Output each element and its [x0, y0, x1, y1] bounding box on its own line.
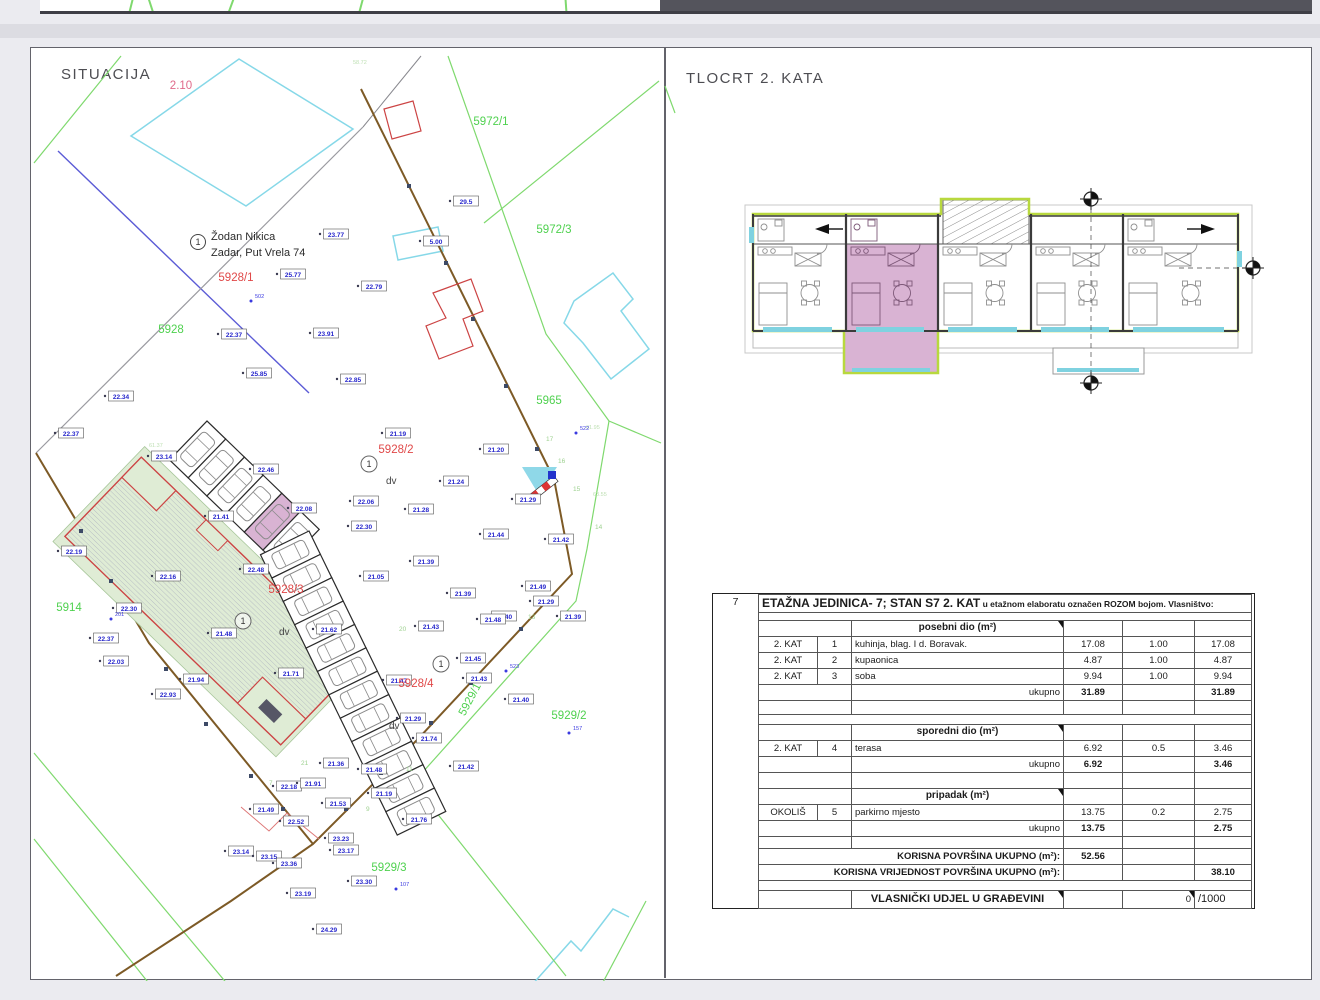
table-cell: 3 [818, 669, 852, 685]
svg-text:7: 7 [269, 780, 273, 787]
terrace-band [753, 331, 1238, 348]
svg-text:63.55: 63.55 [593, 492, 607, 498]
svg-text:21.94: 21.94 [188, 677, 205, 684]
green-line-fragment [358, 0, 365, 14]
table-cell: terasa [852, 741, 1064, 757]
table-cell: 1 [818, 637, 852, 653]
table-cell: soba [852, 669, 1064, 685]
circled-number-marker: 1 [361, 456, 377, 472]
table-row: VLASNIČKI UDJEL U GRAĐEVINI0/1000 [759, 891, 1252, 909]
table-cell [1123, 773, 1195, 789]
svg-text:23.14: 23.14 [156, 454, 173, 461]
svg-text:21.44: 21.44 [488, 532, 505, 539]
elevation-marker: 22.79 [357, 281, 387, 291]
table-cell: ETAŽNA JEDINICA- 7; STAN S7 2. KAT u eta… [759, 595, 1252, 613]
svg-text:21.20: 21.20 [488, 447, 505, 454]
elevation-marker: 21.74 [412, 733, 442, 743]
svg-text:21.36: 21.36 [328, 761, 345, 768]
table-cell: 2. KAT [759, 637, 818, 653]
elevation-marker: 22.30 [347, 521, 377, 531]
parcel-label: 5928/3 [268, 584, 303, 596]
etazna-jedinica-table: ETAŽNA JEDINICA- 7; STAN S7 2. KAT u eta… [758, 594, 1252, 909]
elevation-marker: 22.85 [336, 374, 366, 384]
table-cell: kupaonica [852, 653, 1064, 669]
elevation-marker: 21.40 [504, 694, 534, 704]
svg-text:22.46: 22.46 [258, 467, 275, 474]
table-cell [759, 881, 1252, 891]
svg-text:21.42: 21.42 [458, 764, 475, 771]
svg-text:22.37: 22.37 [63, 431, 80, 438]
table-cell: 31.89 [1195, 685, 1252, 701]
svg-text:25.85: 25.85 [251, 371, 268, 378]
table-cell [1064, 837, 1123, 849]
elevation-marker: 23.17 [329, 845, 359, 855]
svg-text:1: 1 [438, 659, 443, 669]
svg-text:24.29: 24.29 [321, 927, 338, 934]
terrace-window-strip [1057, 368, 1139, 372]
svg-text:21.49: 21.49 [530, 584, 547, 591]
svg-text:21.48: 21.48 [366, 767, 383, 774]
svg-text:16: 16 [558, 458, 566, 465]
table-cell [1123, 701, 1195, 715]
table-cell [759, 891, 852, 909]
elevation-marker: 21.19 [367, 788, 397, 798]
table-cell [1195, 789, 1252, 805]
elevation-marker: 22.37 [217, 329, 247, 339]
dv-label: dv [279, 627, 290, 638]
parcel-label: 5928/4 [398, 678, 434, 690]
svg-text:Žodan Nikica: Žodan Nikica [211, 230, 276, 243]
table-cell: parkirno mjesto [852, 805, 1064, 821]
table-cell: 2.75 [1195, 805, 1252, 821]
table-cell [759, 773, 852, 789]
table-cell [759, 837, 852, 849]
svg-text:201: 201 [115, 612, 124, 618]
svg-text:22.79: 22.79 [366, 284, 383, 291]
table-row [759, 613, 1252, 621]
svg-text:21.41: 21.41 [213, 514, 230, 521]
svg-text:21.71: 21.71 [283, 671, 300, 678]
elevation-marker: 22.46 [249, 464, 279, 474]
svg-text:9: 9 [366, 806, 370, 813]
elevation-marker: 21.43 [414, 621, 444, 631]
elevation-marker: 21.05 [359, 571, 389, 581]
svg-text:1: 1 [366, 459, 371, 469]
svg-text:22.34: 22.34 [113, 394, 130, 401]
table-row [759, 837, 1252, 849]
svg-text:157: 157 [573, 726, 582, 732]
green-line-fragment [564, 0, 567, 14]
elevation-marker: 21.36 [319, 758, 349, 768]
svg-text:21.39: 21.39 [455, 591, 472, 598]
table-cell [1123, 685, 1195, 701]
elevation-marker: 21.29 [529, 596, 559, 606]
table-cell: 0.5 [1123, 741, 1195, 757]
table-cell [1195, 725, 1252, 741]
parcel-label: 5928 [158, 324, 184, 336]
elevation-marker: 21.53 [321, 798, 351, 808]
table-cell [759, 715, 1252, 725]
svg-text:23.30: 23.30 [356, 879, 373, 886]
svg-text:502: 502 [255, 294, 264, 300]
svg-text:22.93: 22.93 [160, 692, 177, 699]
svg-text:21.40: 21.40 [513, 697, 530, 704]
svg-text:21.43: 21.43 [423, 624, 440, 631]
table-cell [1195, 773, 1252, 789]
svg-text:22.03: 22.03 [108, 659, 125, 666]
table-cell: 31.89 [1064, 685, 1123, 701]
table-cell [1195, 837, 1252, 849]
terrace-window-strip [852, 368, 930, 372]
table-cell: /1000 [1195, 891, 1252, 909]
table-cell [1064, 773, 1123, 789]
svg-text:14: 14 [595, 524, 603, 531]
table-row: 2. KAT2kupaonica4.871.004.87 [759, 653, 1252, 669]
elevation-marker: 21.39 [446, 588, 476, 598]
table-cell [1123, 865, 1195, 881]
elevation-marker: 22.16 [151, 571, 181, 581]
elevation-marker: 21.39 [409, 556, 439, 566]
elevation-marker: 22.34 [104, 391, 134, 401]
table-cell: 4 [818, 741, 852, 757]
table-cell [852, 701, 1064, 715]
table-cell: 9.94 [1064, 669, 1123, 685]
table-cell: ukupno [852, 757, 1064, 773]
scanned-document-page: SITUACIJA TLOCRT 2. KATA [0, 0, 1320, 1000]
previous-page-edge [40, 0, 660, 14]
svg-text:11: 11 [406, 766, 413, 773]
elevation-marker: 21.39 [556, 611, 586, 621]
side-window-strip [1237, 251, 1242, 267]
svg-text:23.36: 23.36 [281, 861, 298, 868]
stairwell [943, 200, 1029, 244]
survey-point: 523 [505, 664, 520, 673]
elevation-marker: 22.37 [54, 428, 84, 438]
svg-text:523: 523 [510, 664, 519, 670]
table-cell [1195, 701, 1252, 715]
elevation-marker: 25.77 [276, 269, 306, 279]
table-cell [1123, 621, 1195, 637]
table-cell: 52.56 [1064, 849, 1123, 865]
svg-text:21.62: 21.62 [321, 627, 338, 634]
red-outline-structures [384, 101, 483, 359]
table-cell: 1.00 [1123, 637, 1195, 653]
svg-text:21.05: 21.05 [368, 574, 385, 581]
table-cell: pripadak (m²) [852, 789, 1064, 805]
elevation-marker: 21.76 [402, 814, 432, 824]
table-cell: 13.75 [1064, 805, 1123, 821]
elevation-marker: 22.06 [349, 496, 379, 506]
circled-number-marker: 1 [433, 656, 449, 672]
table-cell [1123, 821, 1195, 837]
elevation-marker: 22.93 [151, 689, 181, 699]
unit-furniture [1036, 244, 1109, 332]
svg-text:22.85: 22.85 [345, 377, 362, 384]
table-row: 2. KAT1kuhinja, blag. I d. Boravak.17.08… [759, 637, 1252, 653]
svg-text:22.37: 22.37 [98, 636, 115, 643]
parcel-label: 2.10 [170, 80, 192, 92]
table-cell: 13.75 [1064, 821, 1123, 837]
table-cell: 2.75 [1195, 821, 1252, 837]
parcel-label: 5965 [536, 395, 562, 407]
elevation-marker: 23.30 [347, 876, 377, 886]
svg-text:23.91: 23.91 [318, 331, 335, 338]
table-cell: 2. KAT [759, 653, 818, 669]
elevation-marker: 21.48 [357, 764, 387, 774]
svg-text:5.00: 5.00 [430, 239, 443, 246]
table-cell: 2 [818, 653, 852, 669]
page-gap [0, 24, 1320, 38]
elevation-marker: 21.29 [511, 494, 541, 504]
table-cell: 9.94 [1195, 669, 1252, 685]
svg-text:1: 1 [240, 616, 245, 626]
elevation-marker: 21.42 [449, 761, 479, 771]
svg-text:23.15: 23.15 [261, 854, 278, 861]
previous-page-dark-edge [660, 0, 1312, 14]
elevation-marker: 23.14 [147, 451, 177, 461]
elevation-marker: 21.91 [296, 778, 326, 788]
table-cell [1064, 789, 1123, 805]
survey-point: 157 [568, 726, 583, 735]
table-cell: 17.08 [1195, 637, 1252, 653]
road-edge-line2 [363, 56, 421, 127]
table-cell [759, 621, 852, 637]
elevation-marker: 29.5 [449, 196, 479, 206]
elevation-marker: 25.85 [242, 368, 272, 378]
highlighted-unit-fill [846, 244, 938, 331]
elevation-marker: 22.03 [99, 656, 129, 666]
svg-text:21.29: 21.29 [538, 599, 555, 606]
survey-point: 201 [110, 612, 125, 621]
svg-text:21.19: 21.19 [390, 431, 407, 438]
elevation-marker: 21.28 [404, 504, 434, 514]
svg-text:21.42: 21.42 [553, 537, 570, 544]
elevation-marker: 23.91 [309, 328, 339, 338]
table-row: 2. KAT4terasa6.920.53.46 [759, 741, 1252, 757]
svg-text:21.39: 21.39 [418, 559, 435, 566]
svg-text:22.08: 22.08 [296, 506, 313, 513]
svg-text:29.5: 29.5 [460, 199, 473, 206]
svg-text:22.30: 22.30 [356, 524, 373, 531]
table-cell: 1.00 [1123, 669, 1195, 685]
green-line-fragment [147, 0, 154, 14]
table-cell: sporedni dio (m²) [852, 725, 1064, 741]
survey-point: 522 [575, 426, 590, 435]
table-cell [759, 685, 852, 701]
elevation-marker: 22.37 [89, 633, 119, 643]
svg-text:21.45: 21.45 [465, 656, 482, 663]
survey-point: 502 [250, 294, 265, 303]
svg-text:22.06: 22.06 [358, 499, 375, 506]
table-cell: 2. KAT [759, 741, 818, 757]
table-cell: 4.87 [1064, 653, 1123, 669]
table-cell [1123, 725, 1195, 741]
svg-text:Zadar, Put Vrela 74: Zadar, Put Vrela 74 [211, 247, 305, 259]
survey-point: 107 [395, 882, 410, 891]
svg-text:61.37: 61.37 [149, 443, 163, 449]
parcel-label: 5914 [56, 602, 82, 614]
svg-text:21.91: 21.91 [305, 781, 322, 788]
svg-text:21.28: 21.28 [413, 507, 430, 514]
svg-text:21.29: 21.29 [520, 497, 537, 504]
table-cell: ukupno [852, 685, 1064, 701]
svg-text:25.77: 25.77 [285, 272, 302, 279]
svg-text:21.48: 21.48 [485, 617, 502, 624]
svg-text:21.74: 21.74 [421, 736, 438, 743]
svg-text:22.19: 22.19 [66, 549, 83, 556]
elevation-marker: 22.52 [279, 816, 309, 826]
document-page: SITUACIJA TLOCRT 2. KATA [30, 47, 1312, 980]
table-cell: OKOLIŠ [759, 805, 818, 821]
dv-label: dv [389, 721, 400, 732]
svg-text:15: 15 [573, 486, 581, 493]
svg-text:23.17: 23.17 [338, 848, 355, 855]
table-cell: 2. KAT [759, 669, 818, 685]
elevation-marker: 21.41 [204, 511, 234, 521]
svg-text:22.48: 22.48 [248, 567, 265, 574]
elevation-marker: 21.42 [544, 534, 574, 544]
elevation-marker: 23.77 [319, 229, 349, 239]
section-marker-symbol [1080, 372, 1102, 394]
elevation-marker: 23.36 [272, 858, 302, 868]
table-cell [1195, 621, 1252, 637]
table-cell: 6.92 [1064, 741, 1123, 757]
table-cell: 1.00 [1123, 653, 1195, 669]
elevation-marker: 21.71 [274, 668, 304, 678]
table-row [759, 701, 1252, 715]
section-marker-symbol [1080, 188, 1102, 210]
circled-number-marker: 1 [235, 613, 251, 629]
table-row [759, 715, 1252, 725]
elevation-marker: 21.19 [381, 428, 411, 438]
svg-text:22.52: 22.52 [288, 819, 305, 826]
table-row [759, 773, 1252, 789]
green-line-fragment [128, 0, 134, 14]
elevation-marker: 24.29 [312, 924, 342, 934]
parcel-label: 5929/3 [371, 862, 406, 874]
elevation-marker: 22.48 [239, 564, 269, 574]
elevation-marker: 23.23 [324, 833, 354, 843]
elevation-marker: 21.24 [439, 476, 469, 486]
elevation-marker: 21.43 [462, 673, 492, 683]
svg-text:1: 1 [195, 237, 200, 247]
svg-text:21: 21 [301, 760, 309, 767]
svg-text:22.16: 22.16 [160, 574, 177, 581]
owner-label: 1Žodan NikicaZadar, Put Vrela 74 [191, 230, 306, 259]
parcel-label: 5928/1 [218, 272, 253, 284]
table-cell [759, 821, 852, 837]
table-cell: 38.10 [1195, 865, 1252, 881]
table-cell [1064, 891, 1123, 909]
table-cell [1064, 701, 1123, 715]
svg-text:21.19: 21.19 [376, 791, 393, 798]
elevation-marker: 23.19 [286, 888, 316, 898]
section-marker-symbol [1242, 257, 1264, 279]
table-cell: KORISNA VRIJEDNOST POVRŠINA UKUPNO (m²): [759, 865, 1064, 881]
parcel-label: 5929/2 [551, 710, 586, 722]
green-line-fragment [227, 0, 235, 14]
table-row: OKOLIŠ5parkirno mjesto13.750.22.75 [759, 805, 1252, 821]
elevation-marker: 23.14 [224, 846, 254, 856]
table-cell [759, 613, 1252, 621]
elevation-marker: 21.48 [207, 628, 237, 638]
table-row-number: 7 [713, 594, 758, 908]
table-cell [759, 701, 852, 715]
dv-label: dv [386, 476, 397, 487]
table-cell: KORISNA POVRŠINA UKUPNO (m²): [759, 849, 1064, 865]
table-cell: ukupno [852, 821, 1064, 837]
table-row: pripadak (m²) [759, 789, 1252, 805]
svg-text:13: 13 [528, 614, 536, 621]
svg-text:21.29: 21.29 [405, 716, 422, 723]
table-cell: 3.46 [1195, 757, 1252, 773]
elevation-marker: 21.94 [179, 674, 209, 684]
ownership-table: 7 ETAŽNA JEDINICA- 7; STAN S7 2. KAT u e… [712, 593, 1255, 909]
svg-text:21.49: 21.49 [258, 807, 275, 814]
elevation-marker: 21.62 [312, 624, 342, 634]
table-cell [1123, 757, 1195, 773]
svg-text:21.76: 21.76 [411, 817, 428, 824]
table-cell: 17.08 [1064, 637, 1123, 653]
parcel-label: 5928/2 [378, 444, 413, 456]
elevation-marker: 21.48 [476, 614, 506, 624]
svg-text:21.39: 21.39 [565, 614, 582, 621]
table-cell: 0 [1123, 891, 1195, 909]
table-row: ETAŽNA JEDINICA- 7; STAN S7 2. KAT u eta… [759, 595, 1252, 613]
svg-text:522: 522 [580, 426, 589, 432]
table-cell: posebni dio (m²) [852, 621, 1064, 637]
svg-text:20: 20 [399, 626, 407, 633]
svg-text:23.14: 23.14 [233, 849, 250, 856]
table-row: posebni dio (m²) [759, 621, 1252, 637]
table-cell: 5 [818, 805, 852, 821]
unit-furniture [758, 219, 832, 332]
elevation-marker: 21.29 [396, 713, 426, 723]
svg-text:22.37: 22.37 [226, 332, 243, 339]
elevation-marker: 21.49 [521, 581, 551, 591]
svg-text:21.48: 21.48 [216, 631, 233, 638]
side-window-strip [749, 227, 754, 243]
parcel-label: 5929/1 [457, 681, 484, 718]
elevation-marker: 5.00 [419, 236, 449, 246]
elevation-marker: 21.49 [249, 804, 279, 814]
elevation-marker: 21.45 [456, 653, 486, 663]
svg-text:17: 17 [546, 436, 554, 443]
svg-text:21.24: 21.24 [448, 479, 465, 486]
table-cell [852, 773, 1064, 789]
table-cell: kuhinja, blag. I d. Boravak. [852, 637, 1064, 653]
table-row: ukupno13.752.75 [759, 821, 1252, 837]
svg-text:107: 107 [400, 882, 409, 888]
table-cell [1123, 849, 1195, 865]
table-cell: 6.92 [1064, 757, 1123, 773]
unit-furniture [943, 244, 1017, 332]
green-line-fragment [665, 86, 675, 113]
parcel-label: 5972/3 [536, 224, 571, 236]
table-cell [1064, 621, 1123, 637]
elevation-marker: 21.44 [479, 529, 509, 539]
svg-text:23.19: 23.19 [295, 891, 312, 898]
table-cell [759, 757, 852, 773]
table-row [759, 881, 1252, 891]
table-row: ukupno31.8931.89 [759, 685, 1252, 701]
parcel-label: 5972/1 [473, 116, 508, 128]
pink-terrace [844, 331, 938, 373]
table-cell [759, 725, 852, 741]
elevation-marker: 21.20 [479, 444, 509, 454]
table-cell: 3.46 [1195, 741, 1252, 757]
table-cell [759, 789, 852, 805]
